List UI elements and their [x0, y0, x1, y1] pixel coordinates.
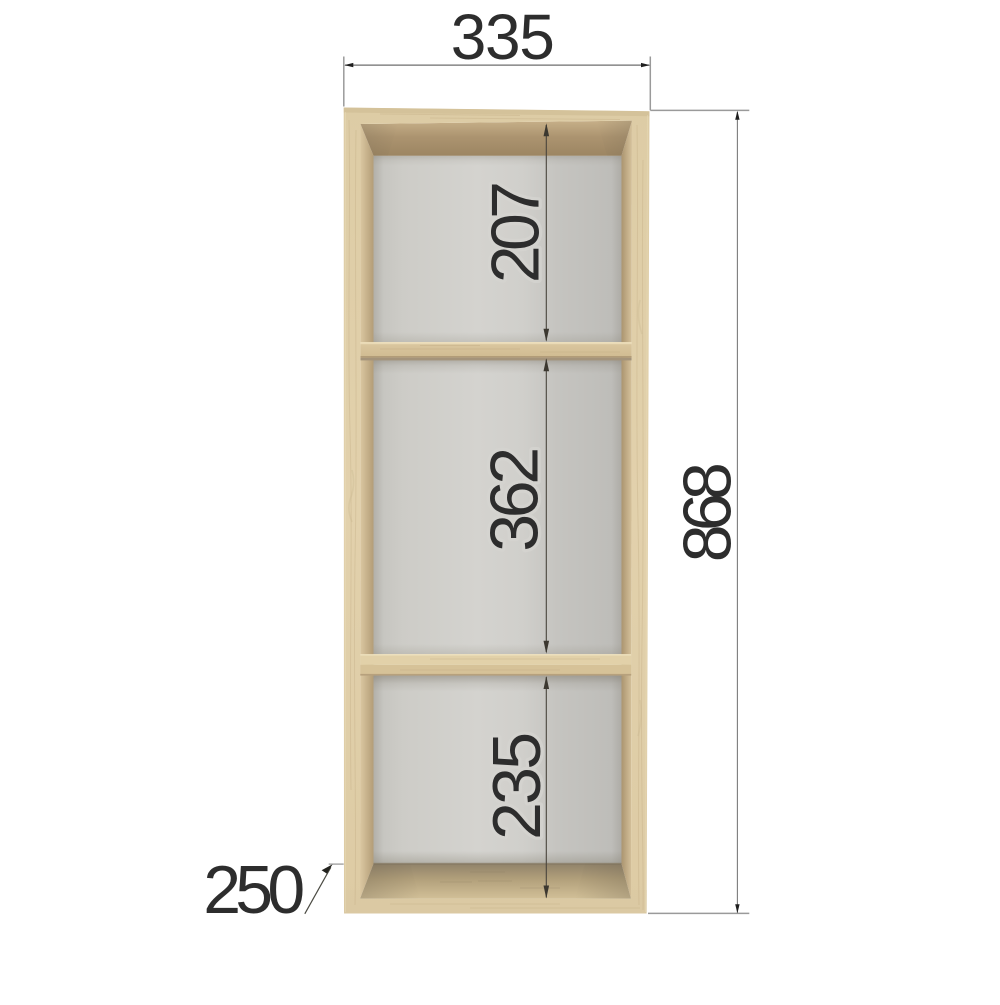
svg-text:335: 335 [451, 1, 555, 73]
svg-text:207: 207 [477, 181, 553, 283]
svg-text:250: 250 [203, 852, 305, 928]
svg-text:235: 235 [479, 732, 555, 840]
svg-text:362: 362 [477, 447, 553, 552]
svg-text:868: 868 [669, 462, 745, 562]
